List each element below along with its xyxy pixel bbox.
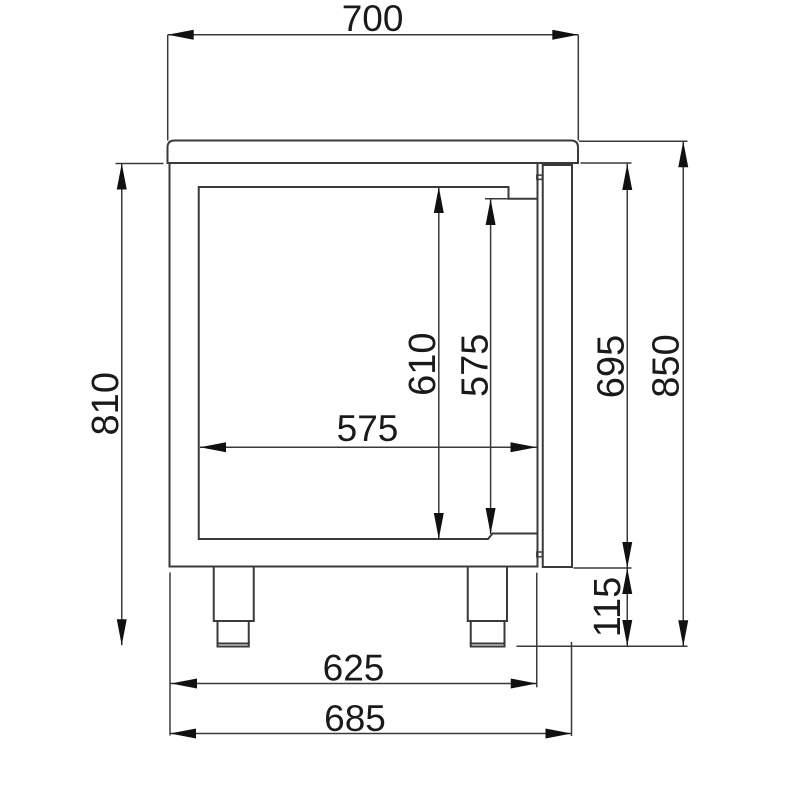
svg-text:610: 610 (402, 332, 444, 395)
svg-text:575: 575 (454, 334, 496, 397)
svg-text:625: 625 (323, 648, 385, 689)
svg-text:850: 850 (646, 334, 688, 397)
svg-text:575: 575 (337, 408, 399, 449)
svg-text:115: 115 (587, 577, 629, 638)
svg-text:810: 810 (85, 372, 127, 435)
svg-text:695: 695 (591, 335, 633, 398)
svg-text:700: 700 (342, 0, 404, 39)
svg-text:685: 685 (324, 698, 386, 739)
